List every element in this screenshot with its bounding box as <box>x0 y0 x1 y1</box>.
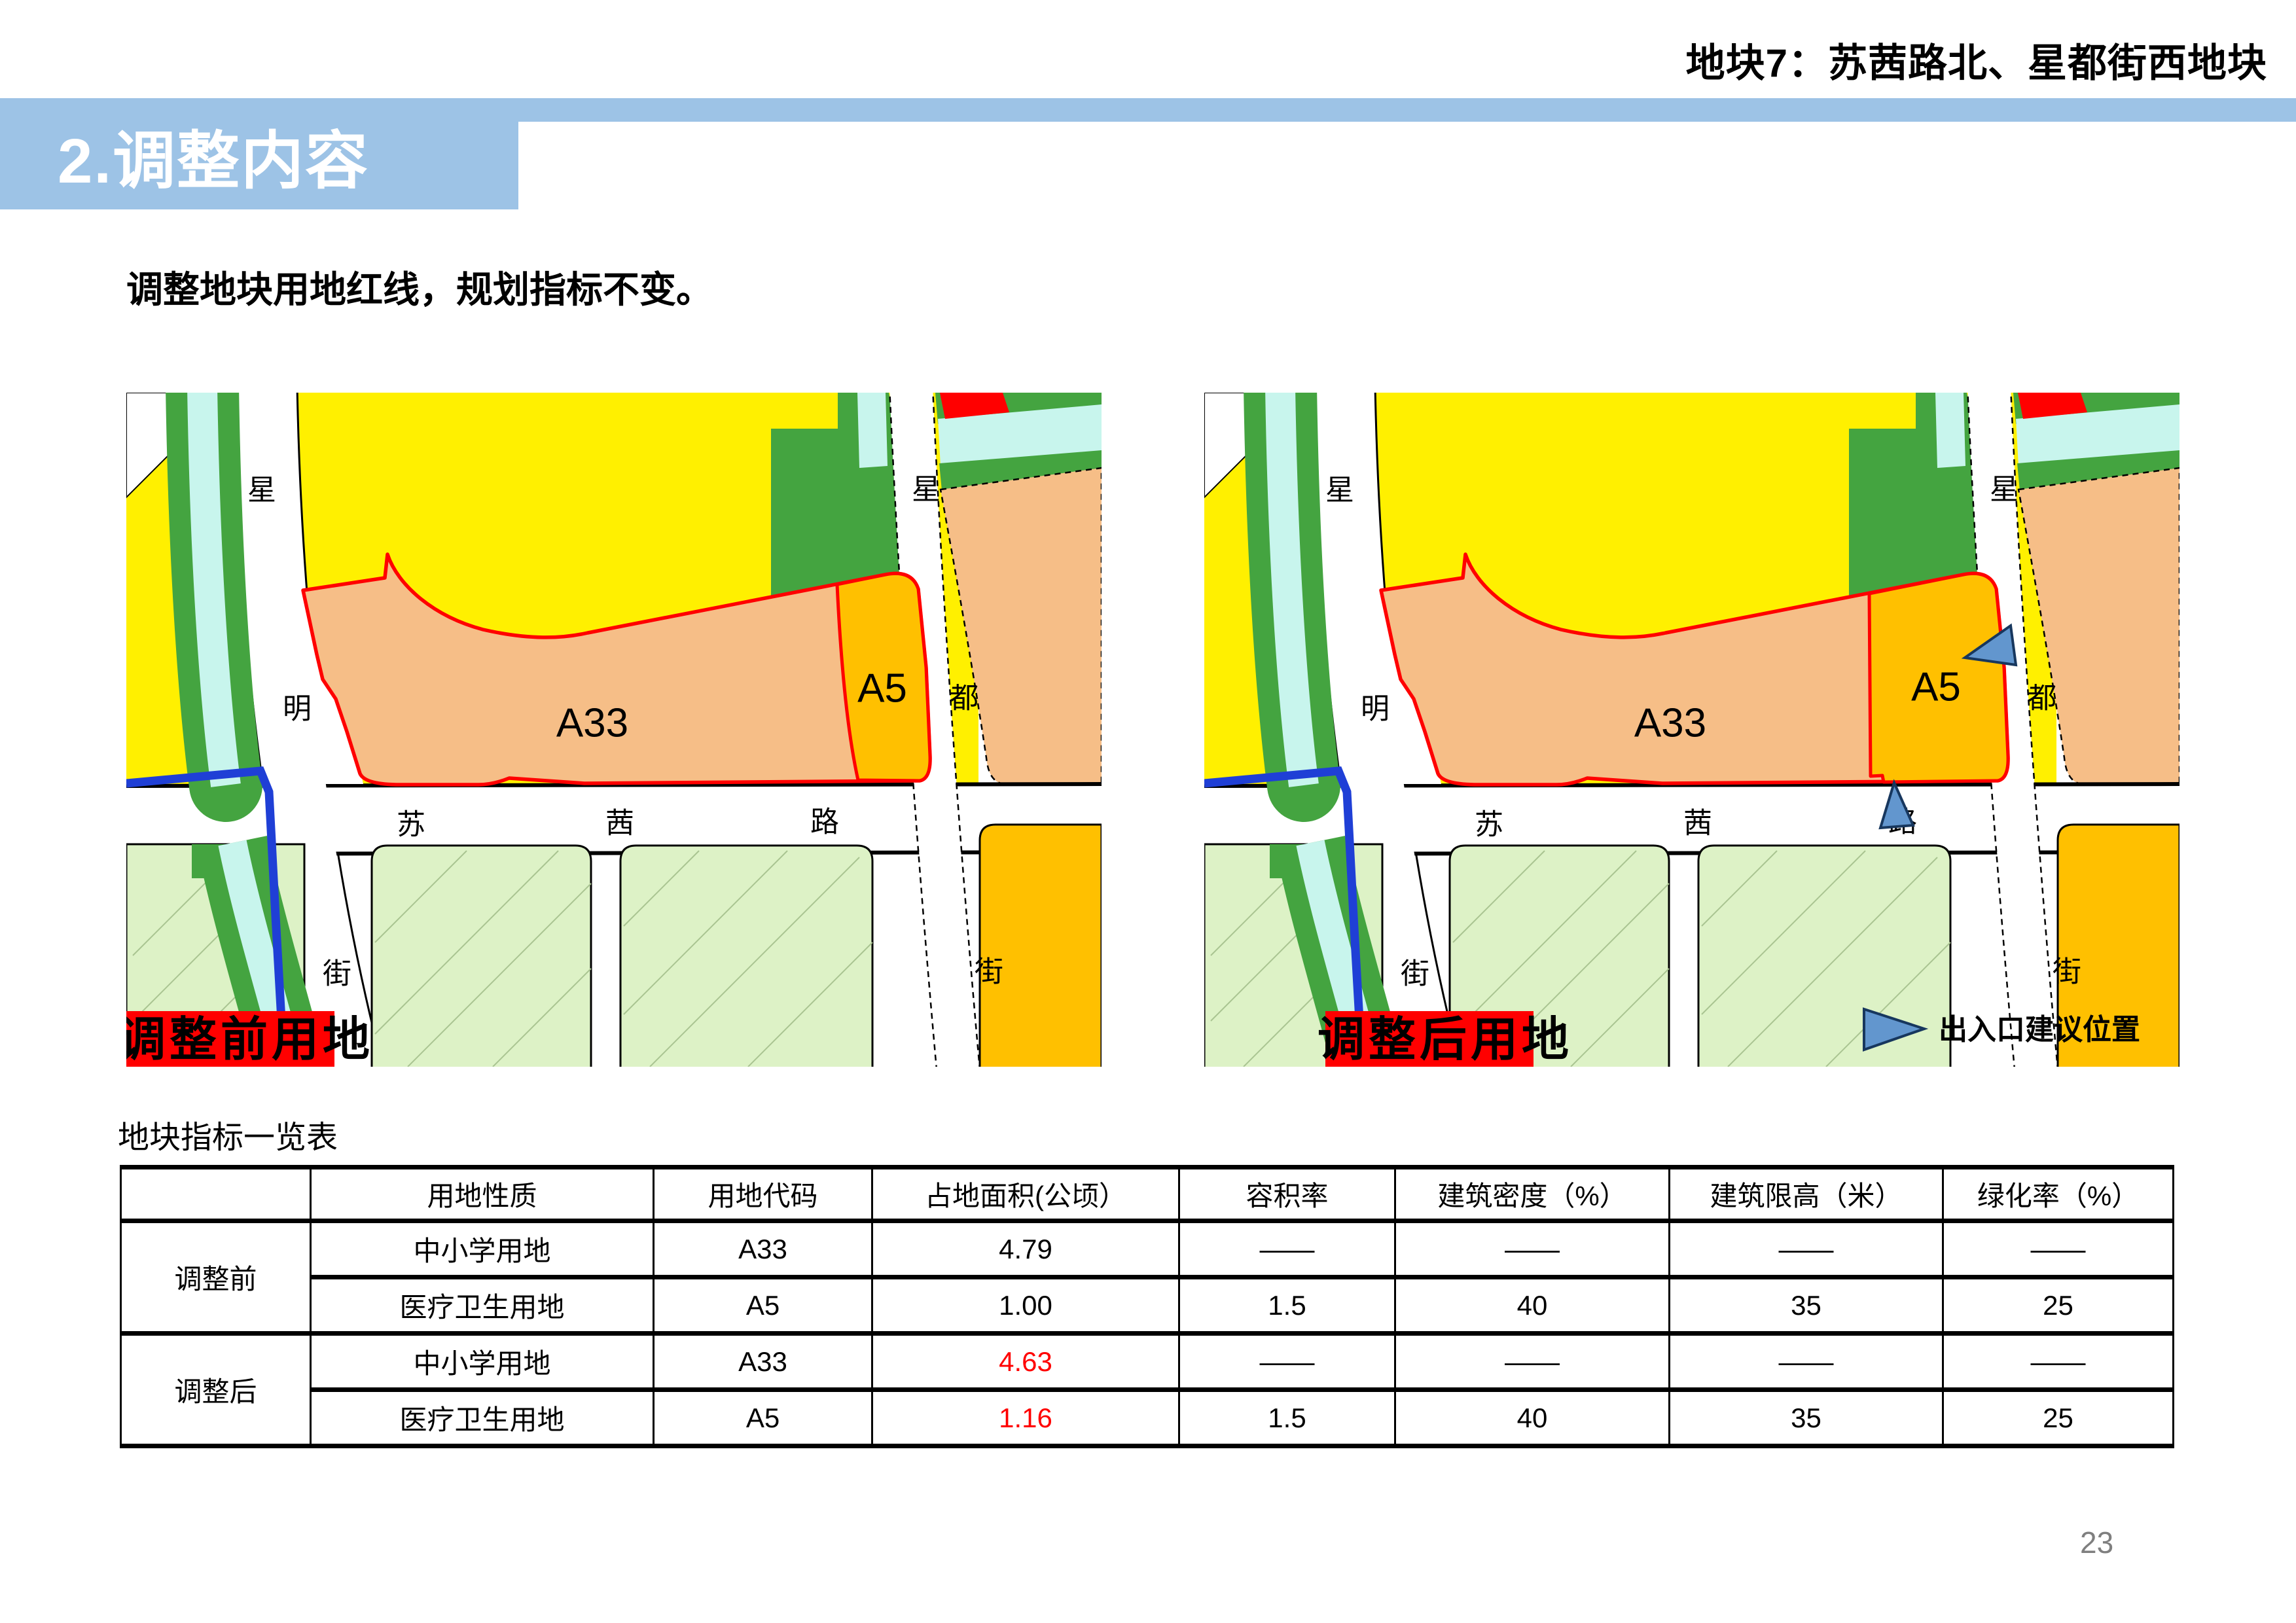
plot-a5-label: A5 <box>857 666 907 711</box>
cell: 1.5 <box>1179 1390 1395 1446</box>
cell: —— <box>1179 1221 1395 1277</box>
map-after-adjustment: A5 出入口建议位置 调整后用地 <box>1204 393 2179 1067</box>
group-label-before: 调整前 <box>121 1221 311 1334</box>
map-before-adjustment: A5 调整前用地 <box>126 393 1102 1067</box>
group-label-after: 调整后 <box>121 1334 311 1446</box>
cell: A33 <box>654 1334 872 1390</box>
cell: 1.00 <box>872 1277 1179 1334</box>
cell: 中小学用地 <box>311 1334 654 1390</box>
cell: —— <box>1179 1334 1395 1390</box>
table-header-row: 用地性质 用地代码 占地面积(公顷） 容积率 建筑密度（%） 建筑限高（米） 绿… <box>121 1168 2174 1221</box>
section-title: 2.调整内容 <box>58 110 516 201</box>
cell: —— <box>1670 1221 1943 1277</box>
map-before-caption: 调整前用地 <box>126 1014 374 1066</box>
slide: 2.调整内容 地块7：苏茜路北、星都街西地块 调整地块用地红线，规划指标不变。 <box>0 0 2296 1623</box>
table-title: 地块指标一览表 <box>118 1111 338 1157</box>
cell: A5 <box>654 1390 872 1446</box>
cell: 40 <box>1395 1390 1670 1446</box>
header-area: 占地面积(公顷） <box>872 1168 1179 1221</box>
header-green-rate: 绿化率（%） <box>1943 1168 2174 1221</box>
cell: —— <box>1943 1221 2174 1277</box>
plot-a5-label: A5 <box>1911 665 1961 710</box>
cell: 医疗卫生用地 <box>311 1277 654 1334</box>
header-density: 建筑密度（%） <box>1395 1168 1670 1221</box>
header-land-code: 用地代码 <box>654 1168 872 1221</box>
cell: 35 <box>1670 1390 1943 1446</box>
cell-highlighted: 4.63 <box>872 1334 1179 1390</box>
table-row: 调整前 中小学用地 A33 4.79 —— —— —— —— <box>121 1221 2174 1277</box>
cell: 40 <box>1395 1277 1670 1334</box>
cell: —— <box>1670 1334 1943 1390</box>
cell: —— <box>1395 1221 1670 1277</box>
cell: —— <box>1943 1334 2174 1390</box>
map-after-caption: 调整后用地 <box>1318 1014 1573 1066</box>
cell: A5 <box>654 1277 872 1334</box>
header-height-limit: 建筑限高（米） <box>1670 1168 1943 1221</box>
cell: 中小学用地 <box>311 1221 654 1277</box>
header-far: 容积率 <box>1179 1168 1395 1221</box>
cell: 医疗卫生用地 <box>311 1390 654 1446</box>
header-land-use: 用地性质 <box>311 1168 654 1221</box>
cell: —— <box>1395 1334 1670 1390</box>
page-title: 地块7：苏茜路北、星都街西地块 <box>1686 31 2267 88</box>
subtitle: 调整地块用地红线，规划指标不变。 <box>126 260 713 313</box>
cell: 35 <box>1670 1277 1943 1334</box>
legend-label: 出入口建议位置 <box>1939 1014 2140 1046</box>
cell: 1.5 <box>1179 1277 1395 1334</box>
table-row: 医疗卫生用地 A5 1.16 1.5 40 35 25 <box>121 1390 2174 1446</box>
indicator-table: 用地性质 用地代码 占地面积(公顷） 容积率 建筑密度（%） 建筑限高（米） 绿… <box>120 1165 2174 1448</box>
table-row: 医疗卫生用地 A5 1.00 1.5 40 35 25 <box>121 1277 2174 1334</box>
cell: A33 <box>654 1221 872 1277</box>
cell-highlighted: 1.16 <box>872 1390 1179 1446</box>
page-number: 23 <box>2080 1525 2113 1560</box>
cell: 25 <box>1943 1390 2174 1446</box>
cell: 25 <box>1943 1277 2174 1334</box>
table-row: 调整后 中小学用地 A33 4.63 —— —— —— —— <box>121 1334 2174 1390</box>
header-blank <box>121 1168 311 1221</box>
cell: 4.79 <box>872 1221 1179 1277</box>
